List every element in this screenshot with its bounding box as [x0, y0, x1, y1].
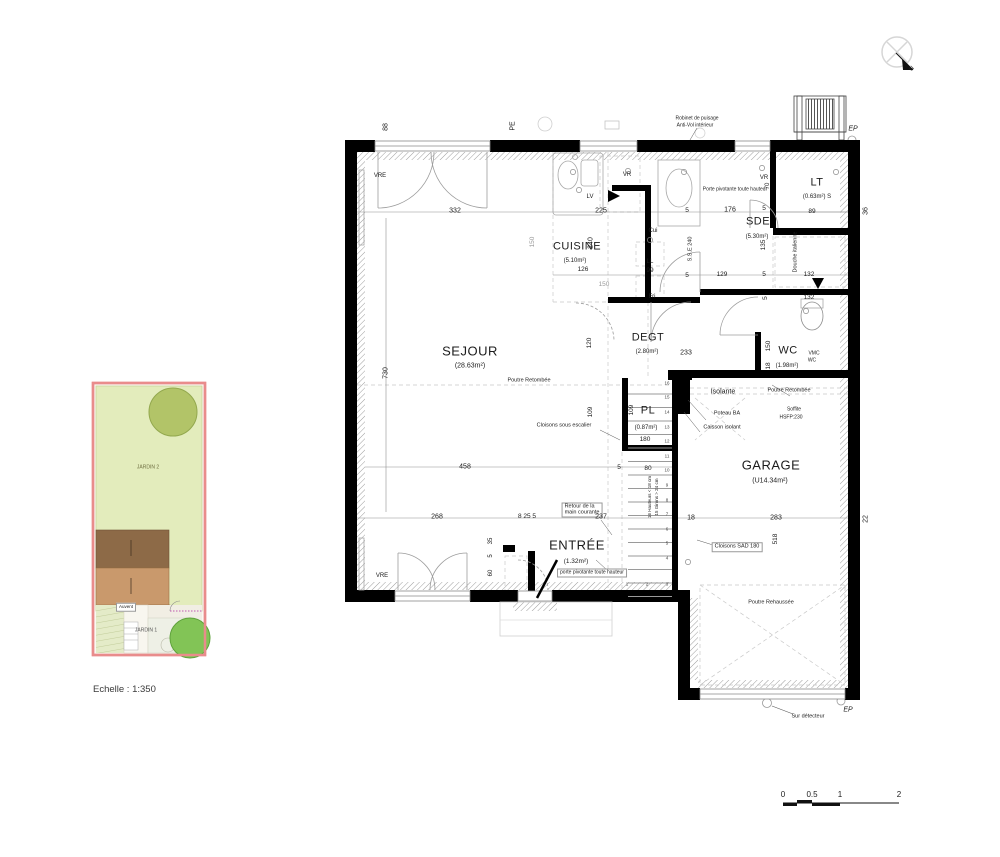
- dim-5e: 5: [763, 296, 770, 300]
- stair-number: 12: [664, 439, 669, 444]
- stair-note-1: 16 Hauteurs < 18 cm: [648, 476, 653, 518]
- scalebar-05: 0.5: [806, 791, 817, 799]
- stair-number: 1: [626, 582, 629, 587]
- lv-label: LV: [587, 194, 594, 200]
- note-poutre-retombee-garage: Poutre Retombée: [767, 388, 810, 394]
- outlet-icons: [570, 165, 838, 564]
- vre-label-top: VRE: [374, 173, 386, 179]
- ep-label-top: EP: [848, 126, 857, 133]
- dim-126: 126: [578, 267, 589, 274]
- stair-number: 8: [666, 497, 669, 502]
- note-isolante: Isolante: [711, 389, 736, 396]
- auvent-label: Auvent: [116, 603, 136, 612]
- dim-8-25-5: 8 25 5: [518, 514, 536, 521]
- dim-518: 518: [773, 534, 780, 545]
- dim-35: 35: [488, 538, 494, 545]
- dim-18: 18: [687, 515, 695, 522]
- dim-150-wc: 150: [766, 341, 773, 352]
- sse-label: S.S.E 240: [688, 237, 694, 262]
- note-poteau-ba: Poteau BA: [714, 411, 740, 417]
- stair-number: 14: [664, 410, 669, 415]
- room-sejour: SEJOUR: [442, 345, 498, 358]
- vr-label-kitchen: VR: [623, 172, 631, 178]
- dim-458: 458: [459, 464, 471, 471]
- dim-109a: 109: [588, 407, 595, 418]
- stair-number: 6: [666, 526, 669, 531]
- room-sde: SDE: [746, 217, 770, 228]
- room-pl-area: (0.87m²): [635, 425, 658, 431]
- dim-70: 70: [765, 183, 771, 190]
- jardin2-label: JARDIN 2: [137, 466, 159, 471]
- vmc-label-2: WC: [808, 359, 816, 364]
- note-soffite-1: Soffite: [787, 408, 801, 413]
- site-plan: [93, 383, 210, 658]
- vre-label-bottom: VRE: [376, 573, 388, 579]
- dim-135: 135: [761, 240, 768, 251]
- room-garage: GARAGE: [742, 459, 801, 472]
- room-lt-area: (0.63m²) S: [803, 194, 831, 200]
- note-douche: Douche italienne: [793, 232, 799, 273]
- dim-109b: 109: [629, 405, 636, 416]
- scalebar-0: 0: [781, 791, 785, 799]
- vmc-label-1: VMC: [808, 352, 819, 357]
- room-lt: LT: [810, 178, 823, 189]
- stair-number: 11: [665, 453, 670, 458]
- note-caisson: Caisson isolant: [703, 425, 740, 431]
- note-poutre-rehaussee: Poutre Rehaussée: [748, 600, 794, 606]
- room-pl: PL: [641, 406, 655, 417]
- dim-240: 240: [588, 237, 595, 249]
- stair-number: 7: [666, 512, 669, 517]
- dim-120: 120: [587, 338, 594, 349]
- scale-bar: [783, 800, 899, 806]
- note-soffite-2: HSFP:230: [779, 416, 802, 421]
- note-porte-pivotante-entree: porte pivotante toute hauteur: [557, 569, 627, 578]
- stair-number: 3: [666, 582, 669, 587]
- dim-18-wc: 18: [766, 362, 773, 369]
- dim-89: 89: [808, 209, 815, 216]
- stair-number: 13: [664, 424, 669, 429]
- dim-88: 88: [383, 123, 390, 131]
- dim-5f: 5: [617, 465, 621, 472]
- stair-number: 15: [664, 395, 669, 400]
- room-garage-area: (U14.34m²): [752, 478, 787, 485]
- stair-number: 4: [666, 556, 669, 561]
- note-poutre-retombee-sejour: Poutre Retombée: [507, 378, 550, 384]
- vr-arrow-icon: [608, 190, 620, 202]
- note-robinet-1: Robinet de puisage: [675, 117, 718, 122]
- dim-22: 22: [863, 515, 870, 523]
- heat-pump-unit: [794, 96, 846, 140]
- note-cloisons-escalier: Cloisons sous escalier: [537, 423, 592, 429]
- room-wc-area: (1.98m²): [776, 363, 799, 369]
- room-wc: WC: [778, 346, 797, 357]
- scalebar-1: 1: [838, 791, 842, 799]
- note-robinet-2: Anti-Vol intérieur: [677, 124, 714, 129]
- dim-5a: 5: [685, 208, 689, 215]
- note-cloisons-sad: Cloisons SAD 180: [712, 542, 763, 552]
- dim-150-grid-h: 150: [599, 282, 610, 289]
- echelle-label: Echelle : 1:350: [93, 684, 156, 695]
- dim-176: 176: [724, 207, 736, 214]
- cui-label: Cui: [648, 228, 657, 234]
- ep-label-bottom: EP: [843, 707, 852, 714]
- jardin1-label: JARDIN 1: [135, 629, 157, 634]
- dim-129: 129: [717, 272, 728, 279]
- dim-268: 268: [431, 514, 443, 521]
- tree-icon: [149, 388, 197, 436]
- pe-label: PE: [510, 121, 517, 130]
- dim-150-grid-v: 150: [530, 237, 537, 248]
- stair-number: 10: [664, 468, 669, 473]
- detector-icon: [763, 699, 772, 708]
- dim-36: 36: [863, 207, 870, 215]
- dim-233: 233: [680, 350, 692, 357]
- north-arrow-icon: [882, 37, 913, 70]
- floorplan-sheet: 12345678910111213141516 SEJOUR (28.63m²)…: [0, 0, 1000, 857]
- dim-5c: 5: [762, 206, 766, 213]
- stair-number: 5: [666, 541, 669, 546]
- dim-60: 60: [488, 570, 494, 577]
- dim-5b: 5: [685, 273, 689, 280]
- note-porte-pivotante-sde: Porte pivotante toute hauteur: [703, 188, 768, 193]
- dim-5d: 5: [762, 272, 766, 279]
- dim-5g: 5: [488, 554, 494, 557]
- dim-132b: 132: [804, 295, 815, 302]
- dim-99: 99: [646, 268, 653, 275]
- dim-80: 80: [644, 466, 651, 473]
- stair-number: 16: [664, 380, 669, 385]
- room-sejour-area: (28.63m²): [455, 363, 485, 370]
- pl-height: 180: [640, 437, 651, 444]
- fri-label: Fri: [649, 294, 656, 300]
- dim-225: 225: [595, 208, 607, 215]
- stair-number: 2: [646, 582, 649, 587]
- dim-730: 730: [383, 367, 390, 379]
- dim-237: 237: [595, 514, 607, 521]
- stair-note-2: 15 Girons > 24 cm: [655, 479, 660, 516]
- note-sur-detecteur: Sur détecteur: [791, 714, 824, 720]
- room-entree-area: (1.32m²): [564, 559, 589, 566]
- room-degt-area: (2.80m²): [636, 349, 659, 355]
- vr-label-sde: VR: [760, 175, 768, 181]
- room-entree: ENTRÉE: [549, 539, 605, 552]
- dim-332: 332: [449, 208, 461, 215]
- room-degt: DEGT: [632, 333, 665, 344]
- ll-label: LL: [647, 259, 654, 265]
- room-cuisine-area: (5.10m²): [564, 258, 587, 264]
- dim-283: 283: [770, 515, 782, 522]
- dim-132a: 132: [804, 272, 815, 279]
- stair-number: 9: [666, 483, 669, 488]
- scalebar-2: 2: [897, 791, 901, 799]
